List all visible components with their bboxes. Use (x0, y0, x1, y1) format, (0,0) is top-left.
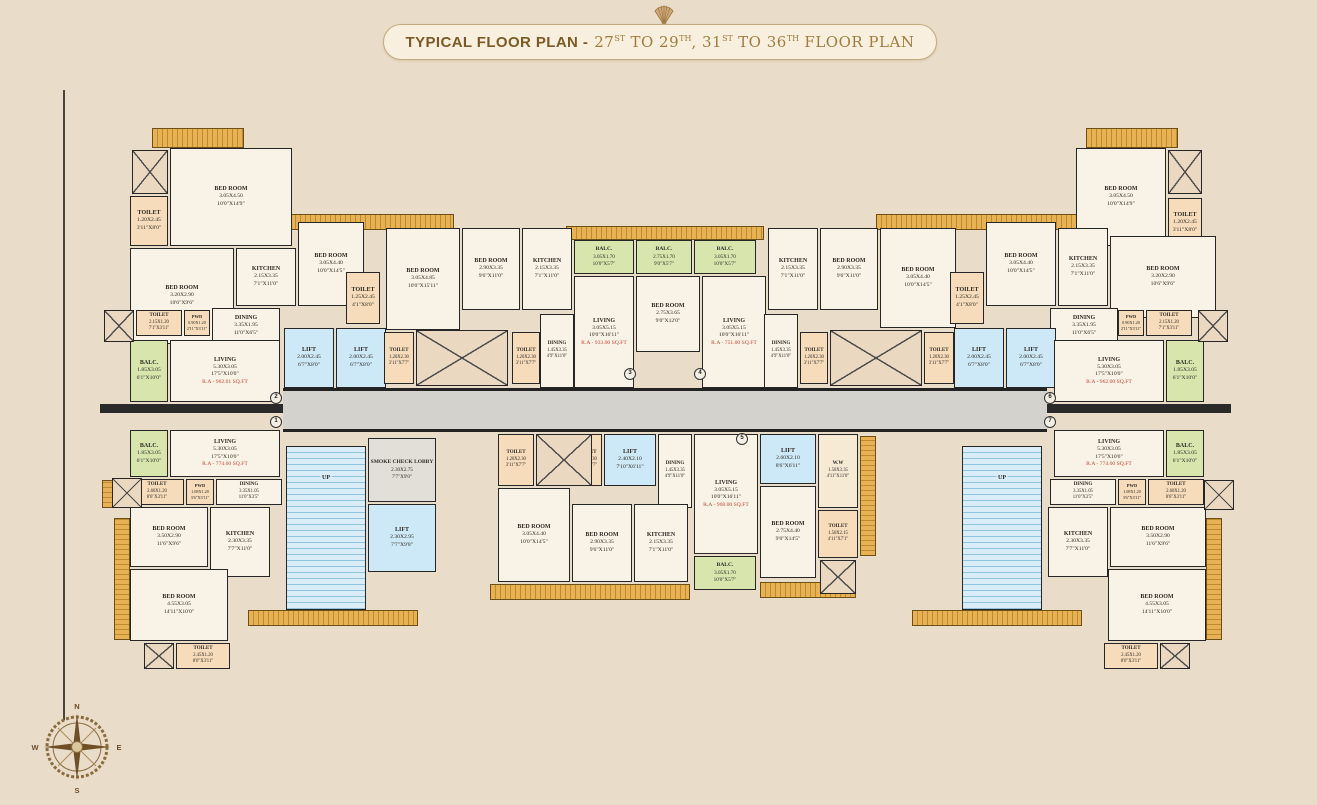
room-toilet: TOILET2.15X1.207'1"X3'11" (1146, 310, 1192, 336)
room-toilet: TOILET1.20X2.303'11"X7'7" (800, 332, 828, 384)
room-toilet: TOILET1.20X2.303'11"X7'7" (924, 332, 954, 384)
left-edge-rule (63, 90, 65, 720)
room-balc: BALC.3.05X1.7010'0"X5'7" (694, 556, 756, 590)
room-bed-room: BED ROOM3.05X4.4010'0"X14'5" (986, 222, 1056, 306)
room-lift: LIFT2.00X2.456'7"X8'0" (336, 328, 386, 388)
room-balc: BALC.3.05X1.7010'0"X5'7" (694, 240, 756, 274)
elevator-shaft (112, 478, 142, 508)
room-living: LIVING3.05X5.1510'0"X16'11"R.A - 751.00 … (702, 276, 766, 388)
elevator-shaft (132, 150, 168, 194)
room-dining: DINING3.35X1.9511'0"X6'5" (1050, 308, 1118, 344)
party-wall (1047, 404, 1231, 413)
room-lift: LIFT2.60X2.108'6"X6'11" (760, 434, 816, 484)
balcony-ledge (152, 128, 244, 148)
room-toilet: TOILET1.20X2.303'11"X7'7" (512, 332, 540, 384)
room-bed-room: BED ROOM2.75X3.659'0"X12'0" (636, 276, 700, 352)
unit-number-marker: 3 (624, 368, 636, 380)
balcony-ledge (566, 226, 764, 240)
party-wall (100, 404, 283, 413)
elevator-shaft (830, 330, 922, 386)
room-bed-room: BED ROOM3.50X2.9011'6"X9'6" (130, 507, 208, 567)
compass-w: W (31, 743, 39, 752)
balcony-ledge (1086, 128, 1178, 148)
room-smoke-check-lobby: SMOKE CHECK LOBBY2.30X2.757'7"X9'0" (368, 438, 436, 502)
elevator-shaft (1160, 643, 1190, 669)
balcony-ledge (114, 518, 130, 640)
room-living: LIVING5.30X3.0517'5"X10'0"R.A - 962.00 S… (1054, 340, 1164, 402)
room-toilet: TOILET1.20X2.453'11"X8'0" (130, 196, 168, 246)
room-toilet: TOILET2.45X1.208'0"X3'11" (1104, 643, 1158, 669)
unit-number-marker: 5 (736, 433, 748, 445)
room-bed-room: BED ROOM3.05X4.4010'0"X14'5" (498, 488, 570, 582)
room-bed-room: BED ROOM2.90X3.359'6"X11'0" (820, 228, 878, 310)
room-lift: LIFT2.00X2.456'7"X8'0" (954, 328, 1004, 388)
room-kitchen: KITCHEN2.30X3.357'7"X11'0" (210, 507, 270, 577)
room-kitchen: KITCHEN2.15X3.357'1"X11'0" (1058, 228, 1108, 306)
compass-rose: N E S W (30, 700, 124, 799)
room-dining: DINING3.35X1.0511'0"X3'5" (1050, 479, 1116, 505)
floor-plan: TOILET1.20X2.453'11"X8'0"BED ROOM3.05X4.… (0, 0, 1317, 805)
room-lift: LIFT2.00X2.456'7"X8'0" (284, 328, 334, 388)
room-bed-room: BED ROOM3.50X2.9011'6"X9'6" (1110, 507, 1206, 567)
room-balc: BALC.1.85X3.056'1"X10'0" (1166, 340, 1204, 402)
elevator-shaft (144, 643, 174, 669)
room-toilet: TOILET1.20X2.303'11"X7'7" (498, 434, 534, 486)
compass-n: N (74, 702, 79, 711)
floor-plan-page: { "title": { "bold": "TYPICAL FLOOR PLAN… (0, 0, 1317, 805)
room-kitchen: KITCHEN2.15X3.357'1"X11'0" (768, 228, 818, 310)
elevator-shaft (1204, 480, 1234, 510)
room-pwd: PWD1.08X1.203'6"X3'11" (186, 479, 214, 505)
balcony-ledge (1206, 518, 1222, 640)
room-dining: DINING3.35X1.9511'0"X6'5" (212, 308, 280, 344)
room-balc: BALC.1.85X3.056'1"X10'0" (130, 340, 168, 402)
room-living: LIVING5.30X3.0517'5"X10'0"R.A - 962.01 S… (170, 340, 280, 402)
room-w-w: W.W1.50X3.354'11"X11'0" (818, 434, 858, 508)
room-dining: DINING1.45X3.354'9"X11'0" (540, 314, 574, 388)
unit-number-marker: 6 (1044, 392, 1056, 404)
room-kitchen: KITCHEN2.30X3.357'7"X11'0" (1048, 507, 1108, 577)
unit-number-marker: 2 (270, 392, 282, 404)
balcony-ledge (912, 610, 1082, 626)
room-bed-room: BED ROOM3.05X4.4010'0"X14'5" (880, 228, 956, 328)
room-toilet: TOILET2.15X1.207'1"X3'11" (136, 310, 182, 336)
room-balc: BALC.3.05X1.7010'0"X5'7" (574, 240, 634, 274)
room-toilet: TOILET1.25X2.454'1"X8'0" (950, 272, 984, 324)
compass-e: E (116, 743, 121, 752)
room-toilet: TOILET2.60X1.208'6"X3'11" (1148, 479, 1204, 505)
unit-number-marker: 7 (1044, 416, 1056, 428)
room-up: UP (962, 446, 1042, 610)
room-dining: DINING1.45X3.354'9"X11'0" (764, 314, 798, 388)
elevator-shaft (820, 560, 856, 594)
room-dining: DINING1.45X3.354'9"X11'0" (658, 434, 692, 508)
corridor (283, 388, 1047, 432)
room-up: UP (286, 446, 366, 610)
room-balc: BALC.2.75X1.709'0"X5'7" (636, 240, 692, 274)
room-pwd: PWD0.90X1.202'11"X3'11" (1118, 310, 1144, 336)
elevator-shaft (416, 330, 508, 386)
room-toilet: TOILET1.25X2.454'1"X8'0" (346, 272, 380, 324)
room-toilet: TOILET2.45X1.208'0"X3'11" (176, 643, 230, 669)
room-living: LIVING5.30X3.0517'5"X10'0"R.A - 774.00 S… (170, 430, 280, 477)
elevator-shaft (1198, 310, 1228, 342)
room-pwd: PWD1.08X1.203'6"X3'11" (1118, 479, 1146, 505)
room-bed-room: BED ROOM3.05X4.5010'0"X14'9" (170, 148, 292, 246)
room-bed-room: BED ROOM2.75X4.409'0"X14'5" (760, 486, 816, 578)
room-kitchen: KITCHEN2.15X3.357'1"X11'0" (522, 228, 572, 310)
balcony-ledge (490, 584, 690, 600)
room-bed-room: BED ROOM2.90X3.359'6"X11'0" (462, 228, 520, 310)
room-bed-room: BED ROOM4.55X3.0514'11"X10'0" (130, 569, 228, 641)
room-kitchen: KITCHEN2.15X3.357'1"X11'0" (634, 504, 688, 582)
unit-number-marker: 1 (270, 416, 282, 428)
room-living: LIVING5.30X3.0517'5"X10'0"R.A - 774.00 S… (1054, 430, 1164, 477)
room-bed-room: BED ROOM2.90X3.359'6"X11'0" (572, 504, 632, 582)
room-living: LIVING3.05X5.1510'0"X16'11"R.A - 968.00 … (694, 434, 758, 554)
elevator-shaft (104, 310, 134, 342)
room-bed-room: BED ROOM3.05X4.8510'0"X15'11" (386, 228, 460, 330)
elevator-shaft (536, 434, 592, 486)
room-toilet: TOILET1.50X2.154'11"X7'1" (818, 510, 858, 558)
room-lift: LIFT2.30X2.957'7"X9'8" (368, 504, 436, 572)
room-dining: DINING3.35X1.0511'0"X3'5" (216, 479, 282, 505)
elevator-shaft (1168, 150, 1202, 194)
room-bed-room: BED ROOM4.55X3.0514'11"X10'0" (1108, 569, 1206, 641)
balcony-ledge (248, 610, 418, 626)
room-lift: LIFT2.00X2.456'7"X8'0" (1006, 328, 1056, 388)
compass-s: S (74, 786, 79, 794)
room-kitchen: KITCHEN2.15X3.357'1"X11'0" (236, 248, 296, 306)
room-balc: BALC.1.85X3.056'1"X10'0" (130, 430, 168, 477)
room-pwd: PWD0.90X1.202'11"X3'11" (184, 310, 210, 336)
room-lift: LIFT2.40X2.107'10"X6'11" (604, 434, 656, 486)
room-balc: BALC.1.85X3.056'1"X10'0" (1166, 430, 1204, 477)
room-bed-room: BED ROOM3.20X2.9010'6"X9'6" (1110, 236, 1216, 318)
balcony-ledge (860, 436, 876, 556)
unit-number-marker: 4 (694, 368, 706, 380)
room-toilet: TOILET1.20X2.303'11"X7'7" (384, 332, 414, 384)
